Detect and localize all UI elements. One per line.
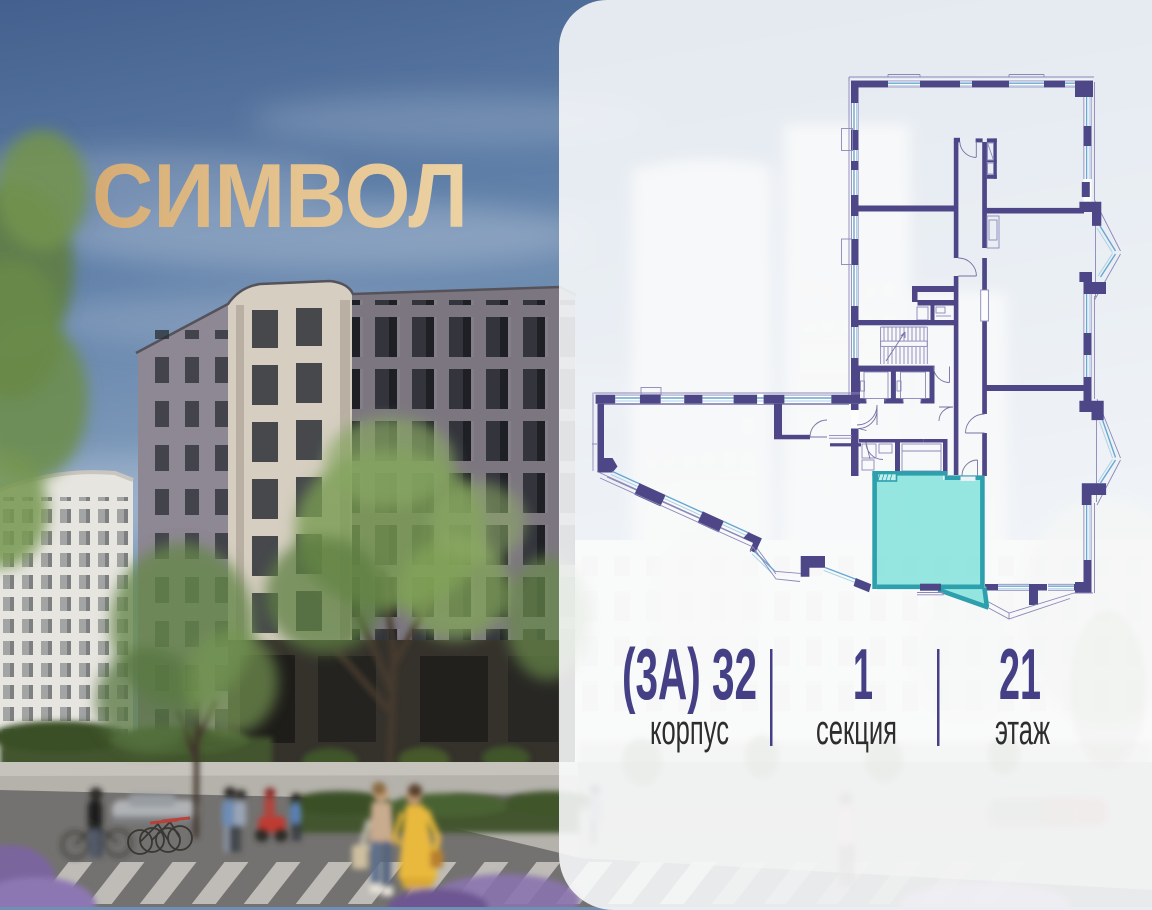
svg-text:21: 21 — [999, 635, 1041, 715]
svg-text:(3А) 32: (3А) 32 — [622, 635, 757, 715]
svg-text:1: 1 — [853, 635, 873, 715]
svg-text:этаж: этаж — [995, 706, 1050, 753]
svg-text:секция: секция — [816, 706, 897, 753]
svg-text:корпус: корпус — [650, 706, 729, 753]
